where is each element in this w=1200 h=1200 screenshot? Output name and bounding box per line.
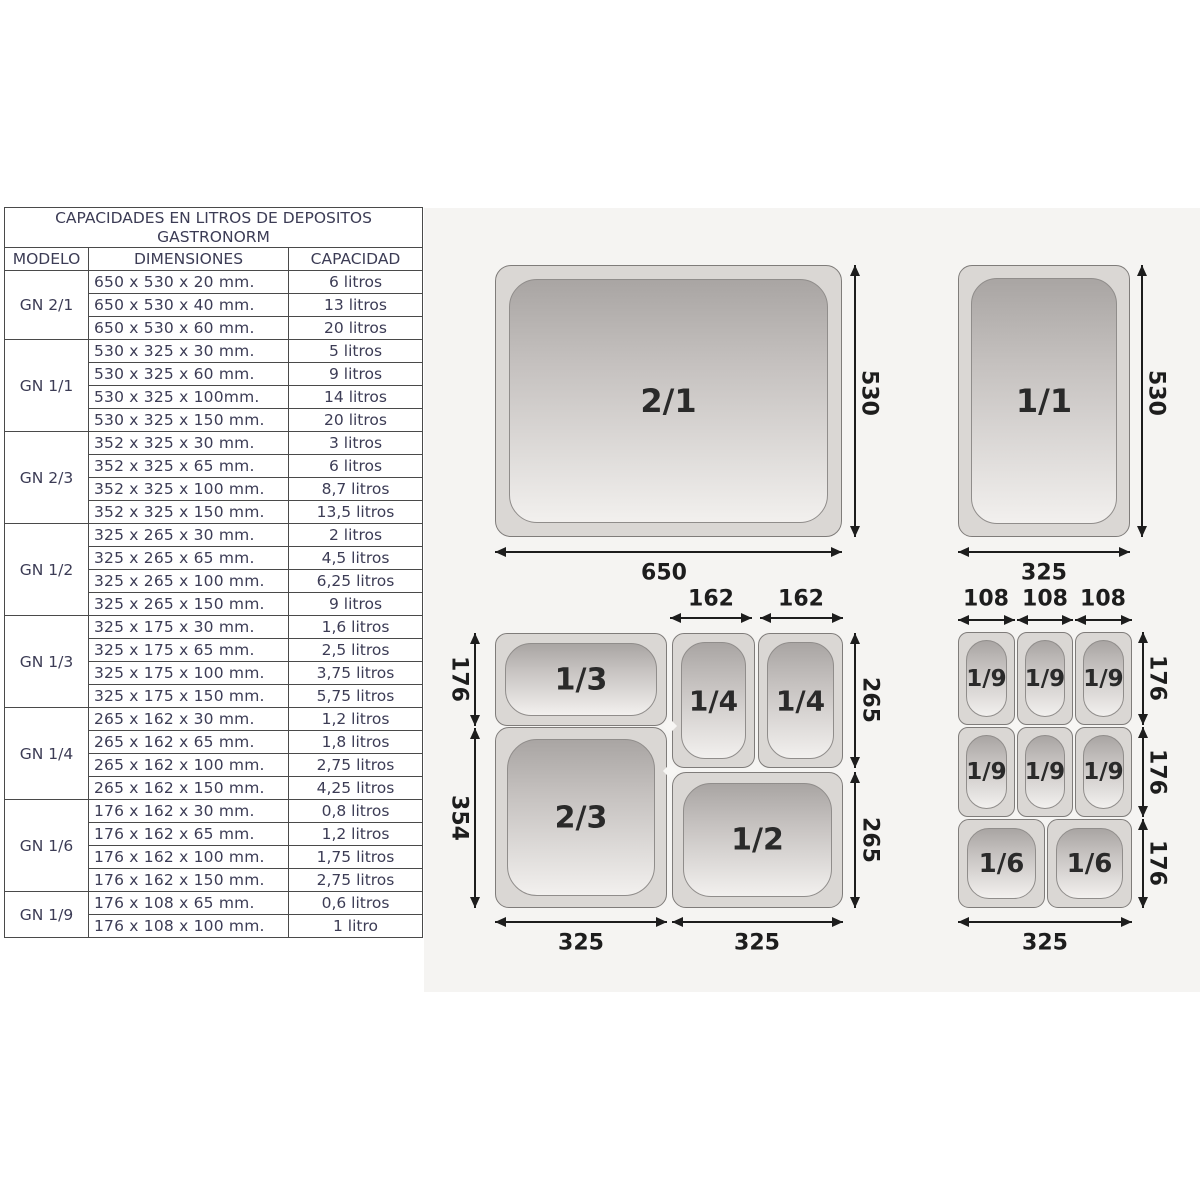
dimensions-cell: 650 x 530 x 40 mm.	[89, 294, 289, 317]
pan-label: 1/9	[1018, 666, 1072, 692]
dim-label-108-a: 108	[963, 587, 1009, 612]
capacity-cell: 5,75 litros	[289, 685, 423, 708]
dimensions-cell: 650 x 530 x 60 mm.	[89, 317, 289, 340]
capacity-cell: 13 litros	[289, 294, 423, 317]
dimensions-cell: 352 x 325 x 150 mm.	[89, 501, 289, 524]
capacity-cell: 4,5 litros	[289, 547, 423, 570]
pan-1-3: 1/3	[495, 633, 667, 726]
capacity-cell: 9 litros	[289, 363, 423, 386]
capacity-cell: 5 litros	[289, 340, 423, 363]
dimensions-cell: 265 x 162 x 150 mm.	[89, 777, 289, 800]
dim-label-gn11-height: 530	[1144, 370, 1169, 416]
capacity-cell: 6 litros	[289, 455, 423, 478]
dimensions-cell: 325 x 265 x 100 mm.	[89, 570, 289, 593]
dim-line-108-a	[958, 619, 1015, 621]
dim-label-176-r2: 176	[1145, 749, 1170, 795]
dimensions-cell: 176 x 162 x 150 mm.	[89, 869, 289, 892]
dim-label-265-a: 265	[858, 677, 883, 723]
pan-1-4-b: 1/4	[758, 633, 843, 768]
dim-label-325-left-a: 325	[558, 931, 604, 956]
dimensions-cell: 352 x 325 x 65 mm.	[89, 455, 289, 478]
dim-label-325-left-b: 325	[734, 931, 780, 956]
dim-line-176-left	[474, 633, 476, 726]
table-row: GN 1/3325 x 175 x 30 mm.1,6 litros	[5, 616, 423, 639]
dimensions-cell: 352 x 325 x 30 mm.	[89, 432, 289, 455]
table-row: GN 2/1650 x 530 x 20 mm.6 litros	[5, 271, 423, 294]
dimensions-cell: 352 x 325 x 100 mm.	[89, 478, 289, 501]
capacity-cell: 13,5 litros	[289, 501, 423, 524]
dimensions-cell: 325 x 175 x 100 mm.	[89, 662, 289, 685]
pan-label: 1/9	[1018, 759, 1072, 785]
model-cell: GN 2/1	[5, 271, 89, 340]
capacity-cell: 1,75 litros	[289, 846, 423, 869]
pan-label: 1/1	[959, 382, 1129, 420]
pan-1-1: 1/1	[958, 265, 1130, 537]
dim-label-265-b: 265	[858, 817, 883, 863]
table-header-row: MODELO DIMENSIONES CAPACIDAD	[5, 248, 423, 271]
column-header-dimensiones: DIMENSIONES	[89, 248, 289, 271]
dim-line-265-b	[854, 772, 856, 908]
pan-1-9-2: 1/9	[1017, 632, 1073, 725]
table-title: CAPACIDADES EN LITROS DE DEPOSITOS GASTR…	[5, 208, 423, 248]
dim-line-gn11-width	[958, 551, 1130, 553]
model-cell: GN 1/9	[5, 892, 89, 938]
dimensions-cell: 650 x 530 x 20 mm.	[89, 271, 289, 294]
dimensions-cell: 265 x 162 x 30 mm.	[89, 708, 289, 731]
capacity-cell: 1,2 litros	[289, 823, 423, 846]
dim-line-325-left-b	[672, 921, 843, 923]
dimensions-cell: 176 x 162 x 100 mm.	[89, 846, 289, 869]
dimensions-cell: 325 x 265 x 150 mm.	[89, 593, 289, 616]
capacity-cell: 3 litros	[289, 432, 423, 455]
capacity-cell: 2 litros	[289, 524, 423, 547]
pan-label: 2/3	[496, 800, 666, 835]
dim-label-gn21-width: 650	[641, 561, 687, 586]
dim-label-354-left: 354	[447, 795, 472, 841]
pan-1-6-2: 1/6	[1047, 819, 1132, 908]
dimensions-cell: 176 x 108 x 65 mm.	[89, 892, 289, 915]
gastronorm-capacity-table: CAPACIDADES EN LITROS DE DEPOSITOS GASTR…	[4, 207, 423, 938]
capacity-cell: 14 litros	[289, 386, 423, 409]
table-row: GN 1/1530 x 325 x 30 mm.5 litros	[5, 340, 423, 363]
dim-label-108-c: 108	[1080, 587, 1126, 612]
capacity-cell: 0,8 litros	[289, 800, 423, 823]
capacity-cell: 6,25 litros	[289, 570, 423, 593]
pan-1-4-a: 1/4	[672, 633, 755, 768]
capacity-cell: 4,25 litros	[289, 777, 423, 800]
capacity-cell: 1,6 litros	[289, 616, 423, 639]
page: CAPACIDADES EN LITROS DE DEPOSITOS GASTR…	[0, 0, 1200, 1200]
pan-1-9-3: 1/9	[1075, 632, 1132, 725]
dimensions-cell: 265 x 162 x 65 mm.	[89, 731, 289, 754]
dim-line-108-c	[1075, 619, 1132, 621]
dim-line-325-right	[958, 921, 1132, 923]
capacity-cell: 6 litros	[289, 271, 423, 294]
dim-label-gn11-width: 325	[1021, 561, 1067, 586]
dim-label-108-b: 108	[1022, 587, 1068, 612]
capacity-cell: 2,75 litros	[289, 754, 423, 777]
pan-label: 1/6	[959, 849, 1044, 879]
dim-line-162-b	[760, 617, 843, 619]
dimensions-cell: 325 x 175 x 65 mm.	[89, 639, 289, 662]
pan-1-9-5: 1/9	[1017, 727, 1073, 817]
table-title-line2: GASTRONORM	[5, 228, 422, 247]
dimensions-cell: 530 x 325 x 30 mm.	[89, 340, 289, 363]
dim-line-354-left	[474, 728, 476, 908]
pan-label: 1/2	[673, 823, 842, 858]
dim-label-325-right: 325	[1022, 931, 1068, 956]
capacity-cell: 1 litro	[289, 915, 423, 938]
capacity-cell: 2,75 litros	[289, 869, 423, 892]
column-header-capacidad: CAPACIDAD	[289, 248, 423, 271]
model-cell: GN 1/6	[5, 800, 89, 892]
pan-label: 1/4	[673, 684, 754, 717]
dimensions-cell: 530 x 325 x 150 mm.	[89, 409, 289, 432]
model-cell: GN 1/3	[5, 616, 89, 708]
capacity-cell: 2,5 litros	[289, 639, 423, 662]
capacity-cell: 0,6 litros	[289, 892, 423, 915]
dim-label-176-r3: 176	[1145, 840, 1170, 886]
dim-line-325-left-a	[495, 921, 667, 923]
pan-label: 1/4	[759, 684, 842, 717]
dimensions-cell: 176 x 108 x 100 mm.	[89, 915, 289, 938]
table-row: GN 1/2325 x 265 x 30 mm.2 litros	[5, 524, 423, 547]
dim-label-176-left: 176	[447, 656, 472, 702]
pan-label: 1/6	[1048, 849, 1131, 879]
table-row: GN 1/4265 x 162 x 30 mm.1,2 litros	[5, 708, 423, 731]
model-cell: GN 1/2	[5, 524, 89, 616]
table-title-line1: CAPACIDADES EN LITROS DE DEPOSITOS	[5, 209, 422, 228]
dim-label-162-b: 162	[778, 587, 824, 612]
table-row: GN 1/6176 x 162 x 30 mm.0,8 litros	[5, 800, 423, 823]
pan-1-9-6: 1/9	[1075, 727, 1132, 817]
dim-label-gn21-height: 530	[857, 370, 882, 416]
pan-2-3: 2/3	[495, 727, 667, 908]
table-title-row: CAPACIDADES EN LITROS DE DEPOSITOS GASTR…	[5, 208, 423, 248]
dimensions-cell: 265 x 162 x 100 mm.	[89, 754, 289, 777]
dimensions-cell: 530 x 325 x 100mm.	[89, 386, 289, 409]
pan-label: 1/9	[959, 759, 1014, 785]
table-row: GN 1/9176 x 108 x 65 mm.0,6 litros	[5, 892, 423, 915]
pan-label: 1/9	[959, 666, 1014, 692]
dimensions-cell: 325 x 175 x 150 mm.	[89, 685, 289, 708]
pan-label: 1/9	[1076, 759, 1131, 785]
capacity-table: CAPACIDADES EN LITROS DE DEPOSITOS GASTR…	[4, 207, 422, 938]
model-cell: GN 1/4	[5, 708, 89, 800]
capacity-cell: 3,75 litros	[289, 662, 423, 685]
pan-1-6-1: 1/6	[958, 819, 1045, 908]
table-body: GN 2/1650 x 530 x 20 mm.6 litros650 x 53…	[5, 271, 423, 938]
dimensions-cell: 176 x 162 x 30 mm.	[89, 800, 289, 823]
dim-line-108-b	[1017, 619, 1073, 621]
dim-label-162-a: 162	[688, 587, 734, 612]
table-row: GN 2/3352 x 325 x 30 mm.3 litros	[5, 432, 423, 455]
pan-label: 1/3	[496, 662, 666, 697]
capacity-cell: 1,2 litros	[289, 708, 423, 731]
dimensions-cell: 325 x 265 x 30 mm.	[89, 524, 289, 547]
column-header-modelo: MODELO	[5, 248, 89, 271]
dimensions-cell: 530 x 325 x 60 mm.	[89, 363, 289, 386]
pan-label: 2/1	[496, 382, 841, 420]
pan-label: 1/9	[1076, 666, 1131, 692]
capacity-cell: 20 litros	[289, 409, 423, 432]
capacity-cell: 20 litros	[289, 317, 423, 340]
pan-1-9-1: 1/9	[958, 632, 1015, 725]
dimensions-cell: 176 x 162 x 65 mm.	[89, 823, 289, 846]
dimensions-cell: 325 x 175 x 30 mm.	[89, 616, 289, 639]
pan-2-1: 2/1	[495, 265, 842, 537]
dim-line-gn21-width	[495, 551, 842, 553]
model-cell: GN 2/3	[5, 432, 89, 524]
pan-1-2: 1/2	[672, 772, 843, 908]
pan-1-9-4: 1/9	[958, 727, 1015, 817]
dim-line-162-a	[670, 617, 752, 619]
dim-label-176-r1: 176	[1145, 655, 1170, 701]
capacity-cell: 8,7 litros	[289, 478, 423, 501]
dim-line-265-a	[854, 633, 856, 768]
dimensions-cell: 325 x 265 x 65 mm.	[89, 547, 289, 570]
model-cell: GN 1/1	[5, 340, 89, 432]
capacity-cell: 9 litros	[289, 593, 423, 616]
capacity-cell: 1,8 litros	[289, 731, 423, 754]
